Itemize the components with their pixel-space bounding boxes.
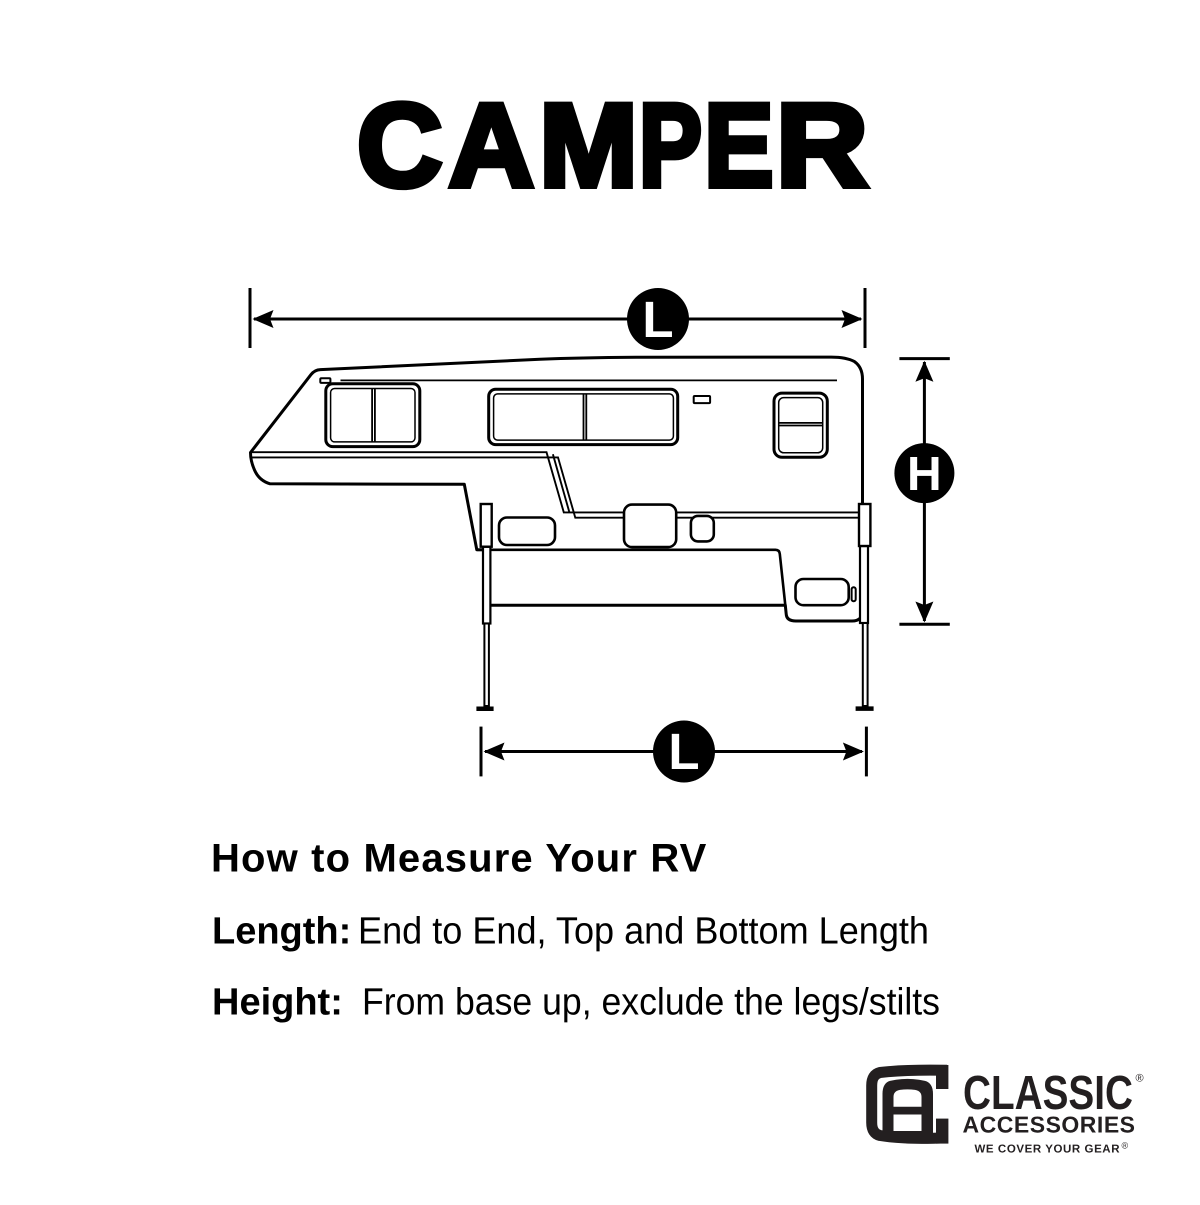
svg-text:End to End, Top and Bottom Len: End to End, Top and Bottom Length xyxy=(358,910,929,952)
svg-text:R: R xyxy=(776,80,868,212)
svg-text:H: H xyxy=(907,448,942,501)
svg-text:A: A xyxy=(449,80,534,212)
svg-text:M: M xyxy=(539,80,638,212)
svg-text:®: ® xyxy=(1122,1141,1129,1151)
svg-text:E: E xyxy=(704,80,773,212)
svg-text:Length:: Length: xyxy=(212,910,351,952)
svg-text:ACCESSORIES: ACCESSORIES xyxy=(963,1112,1136,1138)
svg-text:From base up, exclude the legs: From base up, exclude the legs/stilts xyxy=(362,981,940,1023)
svg-text:How to Measure Your RV: How to Measure Your RV xyxy=(211,836,708,880)
svg-text:P: P xyxy=(639,80,702,212)
svg-text:Height:: Height: xyxy=(212,981,343,1023)
svg-text:L: L xyxy=(668,723,699,780)
svg-text:®: ® xyxy=(1136,1073,1144,1085)
svg-text:L: L xyxy=(642,291,673,348)
svg-text:C: C xyxy=(357,80,442,212)
svg-text:WE COVER YOUR GEAR: WE COVER YOUR GEAR xyxy=(975,1144,1121,1156)
